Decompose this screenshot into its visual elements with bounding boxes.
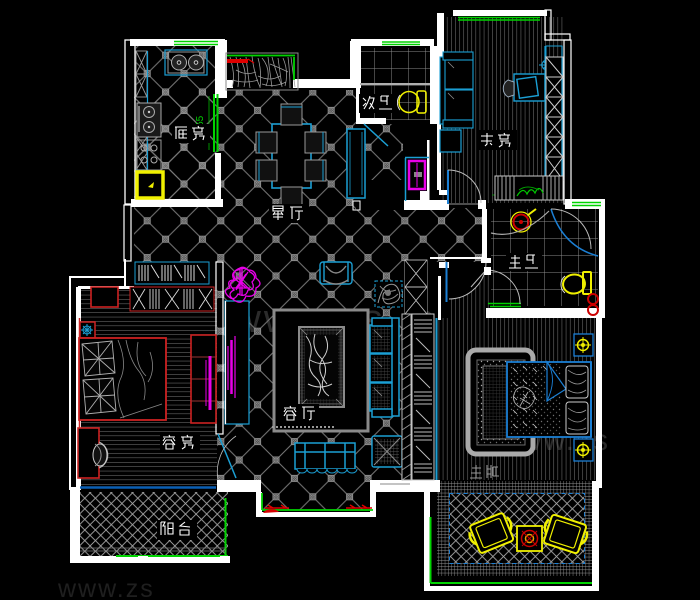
svg-text:www.zs: www.zs bbox=[57, 575, 155, 600]
